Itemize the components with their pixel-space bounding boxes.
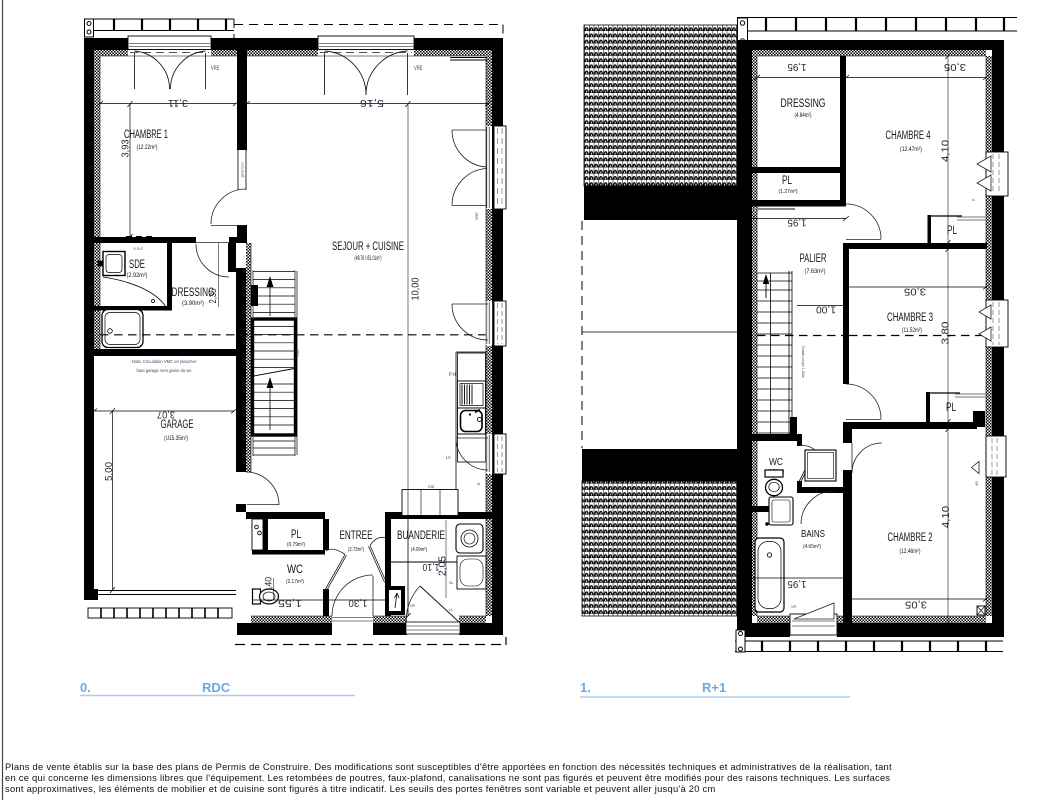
svg-text:VR: VR: [410, 604, 416, 608]
svg-text:VR: VR: [791, 605, 797, 609]
svg-text:LL: LL: [449, 608, 453, 612]
svg-text:(7.63m²): (7.63m²): [805, 268, 826, 275]
svg-text:(3.90m²): (3.90m²): [182, 300, 204, 307]
svg-text:2,35: 2,35: [207, 288, 219, 303]
svg-text:LV: LV: [446, 455, 451, 460]
svg-text:3,05: 3,05: [904, 286, 926, 298]
svg-text:DRESSING: DRESSING: [781, 98, 826, 110]
svg-text:CHAMBRE 4: CHAMBRE 4: [886, 130, 931, 142]
svg-text:Plans de vente établis sur la: Plans de vente établis sur la base des p…: [5, 761, 892, 772]
svg-text:VR: VR: [975, 481, 979, 486]
svg-text:(12.46m²): (12.46m²): [900, 548, 921, 555]
svg-text:5,16: 5,16: [360, 97, 384, 109]
svg-text:3,07: 3,07: [157, 409, 175, 421]
svg-text:PL: PL: [782, 175, 792, 187]
svg-text:PL: PL: [291, 529, 301, 541]
svg-text:CHAMBRE 2: CHAMBRE 2: [888, 532, 933, 544]
svg-text:R+1: R+1: [702, 680, 726, 695]
svg-text:sl: sl: [972, 198, 975, 202]
svg-text:VRE: VRE: [211, 66, 220, 72]
svg-text:3,05: 3,05: [905, 599, 927, 611]
svg-text:1,00: 1,00: [816, 304, 836, 316]
svg-text:Garde-corps 1.00m: Garde-corps 1.00m: [801, 346, 805, 379]
svg-text:PL: PL: [946, 402, 956, 414]
svg-text:BUANDERIE: BUANDERIE: [397, 530, 445, 542]
svg-text:(48.76 U51.01m²): (48.76 U51.01m²): [355, 255, 382, 262]
svg-text:sont approximatives, les éléme: sont approximatives, les éléments de mob…: [5, 783, 716, 794]
svg-text:VRE: VRE: [414, 66, 423, 72]
svg-text:PALIER: PALIER: [800, 253, 827, 265]
svg-text:(2.17m²): (2.17m²): [286, 579, 304, 585]
svg-text:1,30: 1,30: [348, 597, 367, 609]
svg-text:gaine tech: gaine tech: [241, 162, 245, 177]
svg-text:(12.22m²): (12.22m²): [137, 144, 158, 151]
svg-text:10,00: 10,00: [410, 277, 422, 300]
svg-text:(12.47m²): (12.47m²): [900, 146, 922, 153]
svg-text:(4.84m²): (4.84m²): [795, 112, 812, 119]
svg-text:VRE: VRE: [475, 212, 479, 220]
svg-text:CHAMBRE 1: CHAMBRE 1: [124, 129, 168, 141]
svg-text:1,95: 1,95: [787, 61, 806, 73]
svg-text:Fri: Fri: [449, 372, 456, 378]
svg-text:3,80: 3,80: [940, 321, 952, 344]
svg-text:(U15.35m²): (U15.35m²): [164, 435, 188, 442]
svg-text:0.: 0.: [80, 680, 91, 695]
svg-text:(4.65m²): (4.65m²): [803, 544, 821, 550]
svg-text:S.S.E: S.S.E: [133, 247, 143, 251]
svg-text:(0.79m²): (0.79m²): [287, 542, 305, 548]
svg-text:1,95: 1,95: [787, 217, 806, 229]
svg-text:1.: 1.: [580, 680, 591, 695]
svg-text:WC: WC: [769, 457, 783, 468]
svg-text:SDE: SDE: [129, 259, 145, 271]
svg-text:en ce qui concerne les dimensi: en ce qui concerne les dimensions libres…: [5, 772, 890, 783]
svg-text:1,55: 1,55: [278, 597, 302, 609]
svg-text:haut garage vers gaine du wc: haut garage vers gaine du wc: [137, 368, 192, 373]
svg-text:BAINS: BAINS: [801, 528, 825, 540]
svg-text:2,05: 2,05: [437, 556, 449, 576]
svg-text:Nota: Circulation VMC en planc: Nota: Circulation VMC en plancher: [132, 359, 197, 364]
svg-text:WC: WC: [287, 564, 303, 576]
svg-text:PL: PL: [947, 225, 957, 237]
svg-text:ENTREE: ENTREE: [340, 530, 373, 542]
svg-text:3,93: 3,93: [120, 139, 132, 157]
svg-text:,40: ,40: [264, 577, 274, 589]
svg-text:(11.52m²): (11.52m²): [902, 327, 922, 334]
svg-text:3,11: 3,11: [168, 97, 188, 109]
svg-text:Cui: Cui: [428, 484, 434, 489]
svg-text:5,00: 5,00: [103, 462, 115, 481]
svg-text:4,10: 4,10: [940, 140, 952, 162]
svg-text:1,95: 1,95: [787, 578, 806, 590]
svg-text:(2.92m²): (2.92m²): [127, 272, 148, 279]
svg-text:SEJOUR + CUISINE: SEJOUR + CUISINE: [332, 241, 404, 253]
svg-text:CHAMBRE 3: CHAMBRE 3: [887, 312, 933, 324]
svg-text:RDC: RDC: [202, 680, 231, 695]
svg-text:SL: SL: [449, 581, 454, 585]
svg-text:(1.27m²): (1.27m²): [779, 189, 798, 195]
svg-text:3,05: 3,05: [944, 61, 966, 73]
svg-text:4,10: 4,10: [940, 506, 952, 528]
svg-text:(4.09m²): (4.09m²): [411, 547, 427, 553]
svg-text:1.80: 1.80: [296, 350, 300, 357]
svg-text:(2.73m²): (2.73m²): [348, 547, 364, 553]
svg-text:sl: sl: [477, 481, 480, 486]
